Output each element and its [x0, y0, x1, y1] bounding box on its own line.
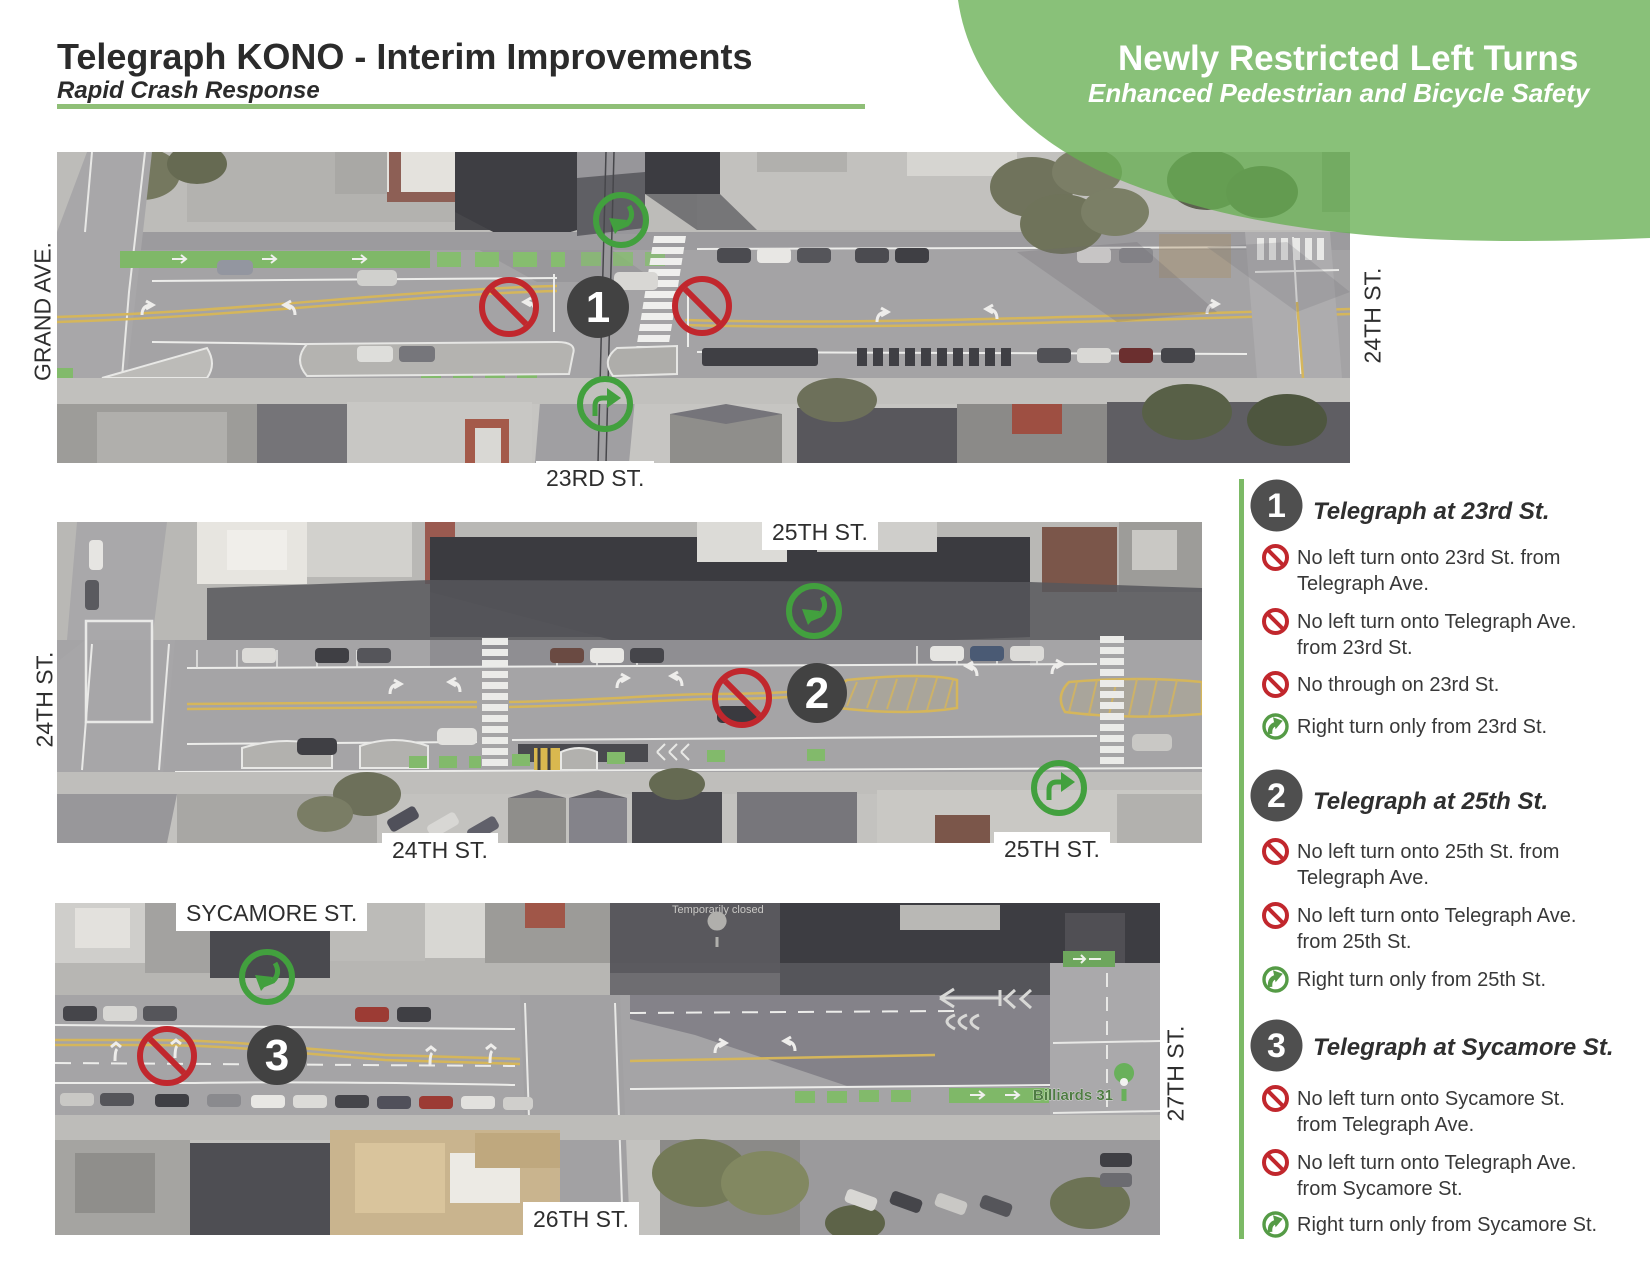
- svg-text:Billiards 31: Billiards 31: [1033, 1087, 1113, 1104]
- svg-text:2: 2: [1267, 777, 1286, 815]
- svg-text:3: 3: [1267, 1027, 1286, 1065]
- svg-text:1: 1: [1267, 487, 1286, 525]
- svg-text:1: 1: [586, 283, 610, 332]
- svg-text:2: 2: [805, 669, 829, 718]
- svg-text:3: 3: [265, 1031, 289, 1080]
